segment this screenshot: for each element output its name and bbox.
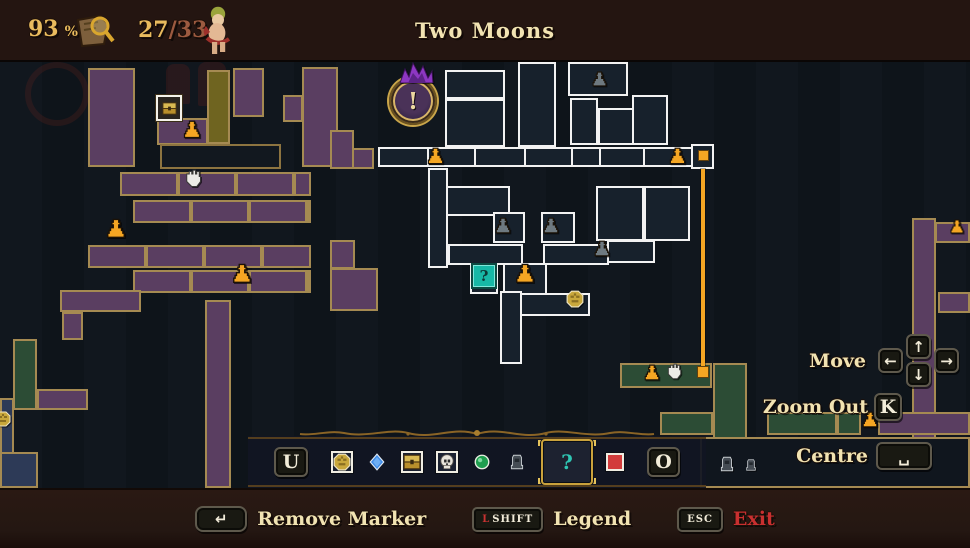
map-room [133, 270, 311, 293]
map-room [0, 452, 38, 488]
map-room [632, 95, 668, 145]
map-room [133, 200, 311, 223]
map-room [938, 292, 970, 313]
zoom-out-label: Zoom Out [700, 396, 868, 418]
gold-seal-icon [566, 290, 584, 308]
top-status-bar: 93% 27/33 Two Moons [0, 0, 970, 62]
cycle-right-key[interactable]: O [647, 447, 680, 477]
area-title: Two Moons [0, 18, 970, 43]
lshift-key[interactable]: L SHIFT [472, 507, 543, 532]
prie-dieu-gray-icon [494, 217, 512, 235]
map-room [428, 168, 448, 268]
marker-toolbar: U ? O [248, 436, 706, 488]
chest-icon [156, 95, 182, 121]
prie-dieu-gold-icon [514, 263, 536, 285]
map-room [330, 240, 355, 269]
map-room [330, 130, 354, 169]
map-room [378, 147, 429, 167]
map-room [88, 68, 135, 167]
prie-dieu-gold-icon [105, 218, 127, 240]
prie-dieu-gray-icon [591, 71, 608, 88]
elevator-track-line [701, 169, 705, 368]
map-room [352, 148, 374, 169]
map-room [283, 95, 303, 122]
right-arrow-icon: → [940, 352, 953, 370]
marker-chest[interactable] [401, 451, 423, 473]
legend-label: Legend [553, 508, 631, 530]
prie-dieu-gold-icon [426, 147, 445, 166]
centre-label: Centre [700, 445, 868, 467]
enter-key[interactable]: ↵ [195, 506, 247, 532]
move-down-key[interactable]: ↓ [906, 362, 931, 387]
cycle-left-key[interactable]: U [274, 447, 308, 477]
hand-icon [665, 363, 683, 381]
map-room [207, 70, 230, 144]
map-room [518, 62, 556, 147]
question-marker-icon: ? [471, 263, 497, 289]
move-label: Move [760, 350, 866, 372]
remove-marker-label: Remove Marker [257, 508, 426, 530]
map-room [205, 300, 231, 488]
prie-dieu-gold-icon [231, 263, 253, 285]
exit-label: Exit [733, 508, 775, 530]
map-room [500, 291, 522, 364]
map-room [571, 147, 601, 167]
prie-dieu-gold-icon [182, 120, 202, 140]
marker-gold-seal[interactable] [331, 451, 353, 473]
move-up-key[interactable]: ↑ [906, 334, 931, 359]
centre-key[interactable]: ␣ [876, 442, 932, 470]
map-room [13, 339, 37, 410]
lshift-key-prefix: L [482, 514, 490, 525]
purple-flame-icon [397, 61, 435, 83]
map-room [524, 147, 573, 167]
game-map-screen: { "header": { "completion_value": "93", … [0, 0, 970, 546]
filigree-ornament-top [248, 427, 706, 441]
prie-dieu-gold-icon [643, 364, 661, 382]
prie-dieu-gold-icon [668, 147, 687, 166]
map-room [62, 312, 83, 340]
marker-skull[interactable] [436, 451, 458, 473]
hand-icon [183, 169, 203, 189]
map-room [233, 68, 264, 117]
esc-key[interactable]: ESC [677, 507, 723, 532]
marker-tombstone[interactable] [506, 451, 528, 473]
player-marker-exclamation: ! [408, 88, 418, 115]
prie-dieu-gold-icon [949, 219, 965, 235]
move-left-key[interactable]: ← [878, 348, 903, 373]
elevator-stop-icon [697, 366, 709, 378]
move-right-key[interactable]: → [934, 348, 959, 373]
marker-green-gem[interactable] [471, 451, 493, 473]
map-room [37, 389, 88, 410]
bottom-hint-bar: ↵ Remove Marker L SHIFT Legend ESC Exit [0, 488, 970, 548]
player-location-marker: ! [389, 77, 437, 125]
map-room [330, 268, 378, 311]
map-room [120, 172, 311, 196]
map-room [599, 147, 645, 167]
lshift-key-text: SHIFT [492, 514, 533, 525]
map-room [570, 98, 598, 145]
map-viewport: ?! [0, 60, 970, 488]
marker-row: U ? O [274, 439, 680, 485]
gold-seal-icon [0, 411, 11, 427]
map-room [596, 186, 644, 241]
faint-rose-window-decor [25, 62, 89, 126]
map-room [474, 147, 526, 167]
map-room [60, 290, 141, 312]
map-room [448, 244, 523, 265]
map-room [160, 144, 281, 169]
down-arrow-icon: ↓ [912, 366, 925, 384]
elevator-stop-icon [698, 150, 709, 161]
up-arrow-icon: ↑ [912, 338, 925, 356]
map-room [0, 398, 14, 456]
map-room [445, 99, 505, 147]
left-arrow-icon: ← [884, 352, 897, 370]
prie-dieu-gray-icon [593, 240, 611, 258]
map-room [88, 245, 311, 268]
marker-question-mark[interactable]: ? [541, 439, 593, 485]
prie-dieu-gray-icon [542, 217, 560, 235]
map-room [445, 70, 505, 99]
map-room [644, 186, 690, 241]
marker-red-square[interactable] [606, 453, 624, 471]
marker-blue-diamond[interactable] [366, 451, 388, 473]
zoom-out-key[interactable]: K [874, 393, 902, 421]
map-room [607, 240, 655, 263]
